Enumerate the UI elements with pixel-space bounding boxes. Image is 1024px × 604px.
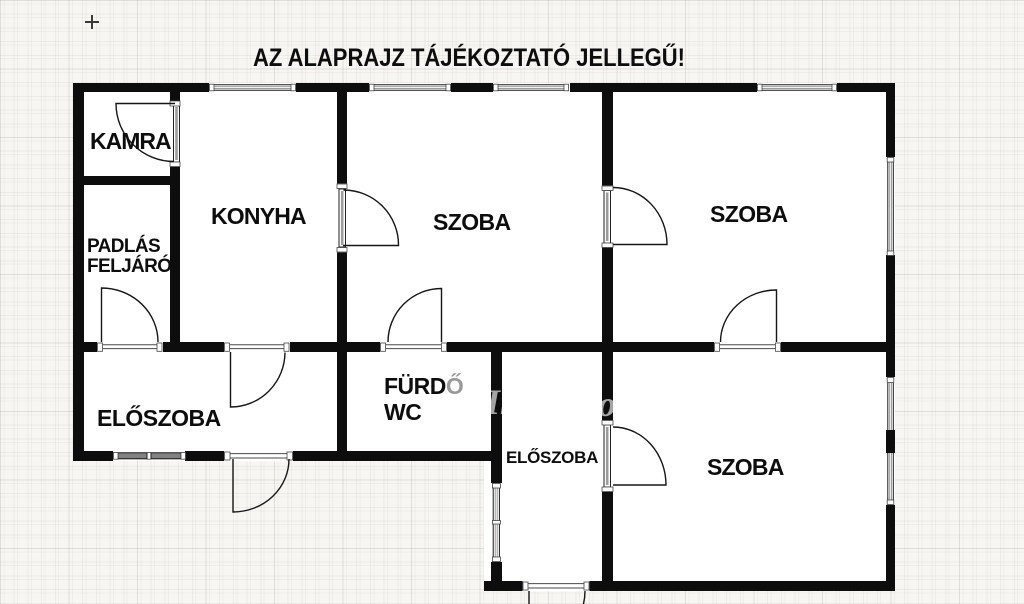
svg-text:SZOBA: SZOBA bbox=[433, 209, 511, 235]
svg-text:KONYHA: KONYHA bbox=[211, 203, 306, 229]
svg-text:SZOBA: SZOBA bbox=[707, 454, 784, 480]
svg-text:AZ ALAPRAJZ TÁJÉKOZTATÓ JELLEG: AZ ALAPRAJZ TÁJÉKOZTATÓ JELLEGŰ! bbox=[253, 43, 685, 72]
svg-text:KAMRA: KAMRA bbox=[90, 128, 171, 154]
svg-text:ELŐSZOBA: ELŐSZOBA bbox=[97, 404, 221, 431]
svg-text:ELŐSZOBA: ELŐSZOBA bbox=[506, 448, 598, 467]
svg-text:PADLÁS: PADLÁS bbox=[87, 235, 160, 257]
svg-text:FÜRDŐ: FÜRDŐ bbox=[384, 372, 463, 399]
svg-text:WC: WC bbox=[384, 399, 421, 425]
svg-text:SZOBA: SZOBA bbox=[710, 201, 788, 227]
svg-text:FELJÁRÓ: FELJÁRÓ bbox=[87, 255, 171, 277]
